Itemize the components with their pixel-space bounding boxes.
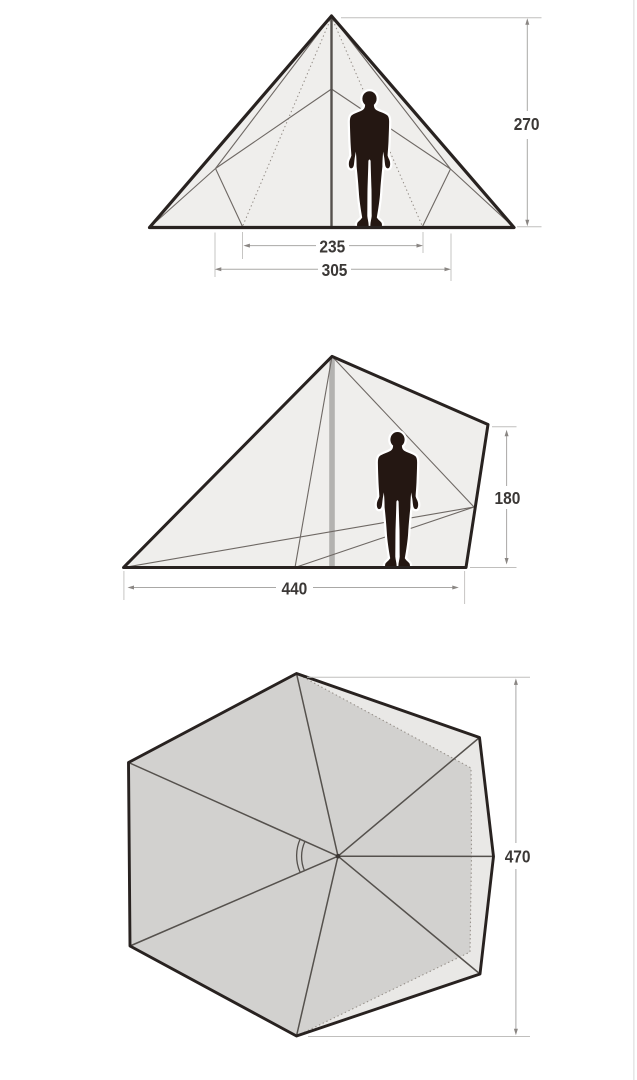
svg-text:180: 180: [494, 488, 520, 508]
svg-text:440: 440: [281, 578, 307, 598]
svg-text:470: 470: [505, 846, 531, 866]
svg-text:235: 235: [319, 236, 345, 256]
svg-text:305: 305: [322, 260, 348, 280]
svg-text:270: 270: [514, 114, 540, 134]
